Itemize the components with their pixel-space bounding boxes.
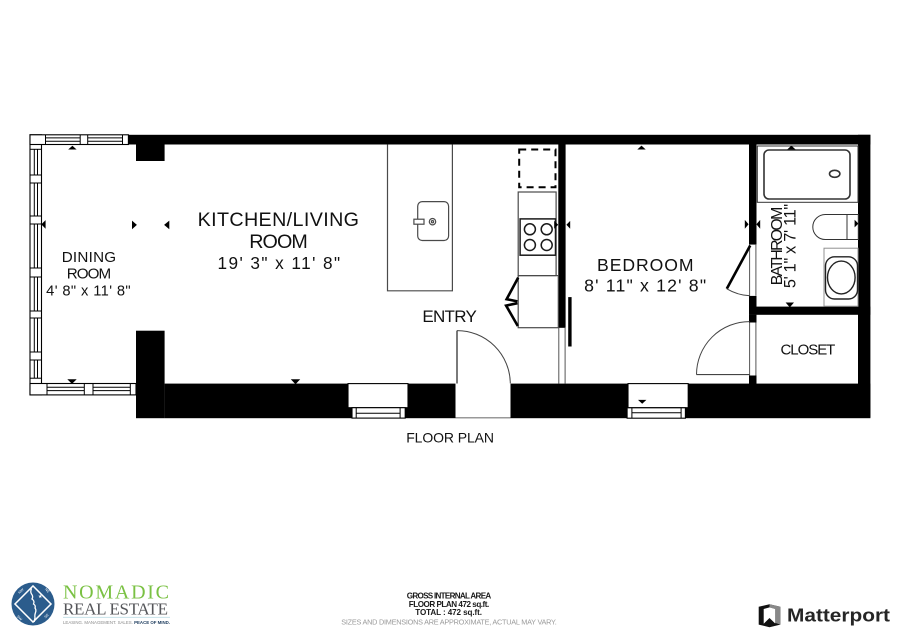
svg-text:19' 3" x 11' 8": 19' 3" x 11' 8" xyxy=(218,253,341,273)
svg-text:ROOM: ROOM xyxy=(249,231,308,253)
svg-text:BEDROOM: BEDROOM xyxy=(597,255,694,275)
svg-text:SIZES AND DIMENSIONS ARE APPRO: SIZES AND DIMENSIONS ARE APPROXIMATE, AC… xyxy=(341,618,557,627)
svg-text:★: ★ xyxy=(38,594,43,600)
svg-text:CLOSET: CLOSET xyxy=(780,342,835,359)
svg-text:ENTRY: ENTRY xyxy=(422,307,476,326)
svg-text:8' 11" x 12' 8": 8' 11" x 12' 8" xyxy=(584,275,706,295)
svg-text:FLOOR PLAN: FLOOR PLAN xyxy=(406,429,494,445)
svg-text:ROOM: ROOM xyxy=(67,266,111,283)
svg-text:LEASING. MANAGEMENT. SALES. PE: LEASING. MANAGEMENT. SALES. PEACE OF MIN… xyxy=(63,620,170,625)
svg-text:Matterport: Matterport xyxy=(787,605,890,625)
svg-text:5' 1" x 7' 11": 5' 1" x 7' 11" xyxy=(781,204,799,289)
svg-text:KITCHEN/LIVING: KITCHEN/LIVING xyxy=(198,209,359,231)
svg-text:4' 8" x 11' 8": 4' 8" x 11' 8" xyxy=(46,283,130,299)
svg-text:DINING: DINING xyxy=(62,249,116,266)
svg-text:REAL ESTATE: REAL ESTATE xyxy=(63,600,168,619)
svg-text:TOTAL : 472 sq.ft.: TOTAL : 472 sq.ft. xyxy=(415,608,482,617)
